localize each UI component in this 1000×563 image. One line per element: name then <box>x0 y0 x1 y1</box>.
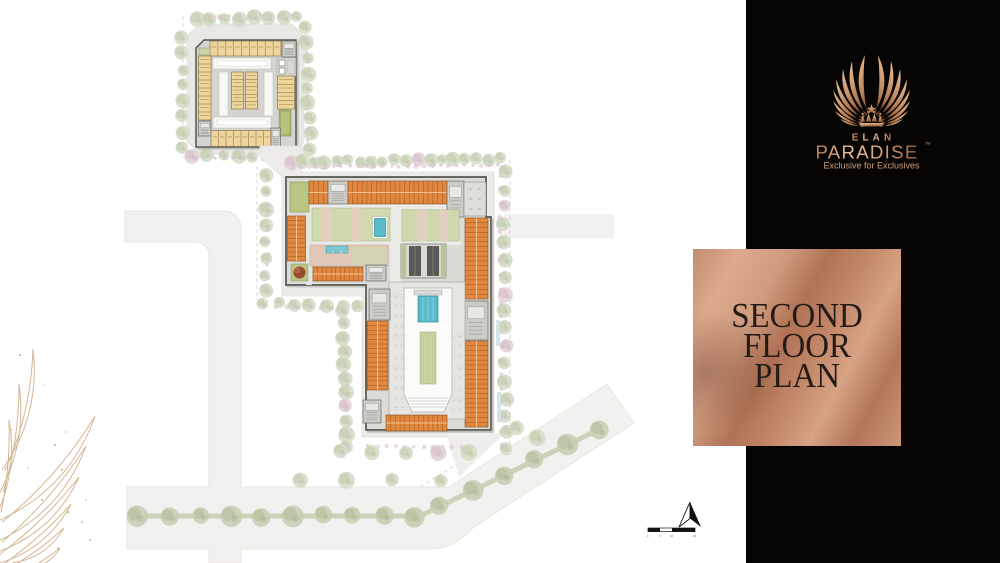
svg-text:Exclusive for Exclusives: Exclusive for Exclusives <box>823 161 920 171</box>
svg-text:PARADISE: PARADISE <box>815 142 918 163</box>
svg-text:10: 10 <box>670 534 673 538</box>
svg-text:TM: TM <box>925 142 930 146</box>
svg-text:0: 0 <box>647 534 649 538</box>
svg-text:5: 5 <box>659 534 661 538</box>
svg-text:20: 20 <box>693 534 696 538</box>
